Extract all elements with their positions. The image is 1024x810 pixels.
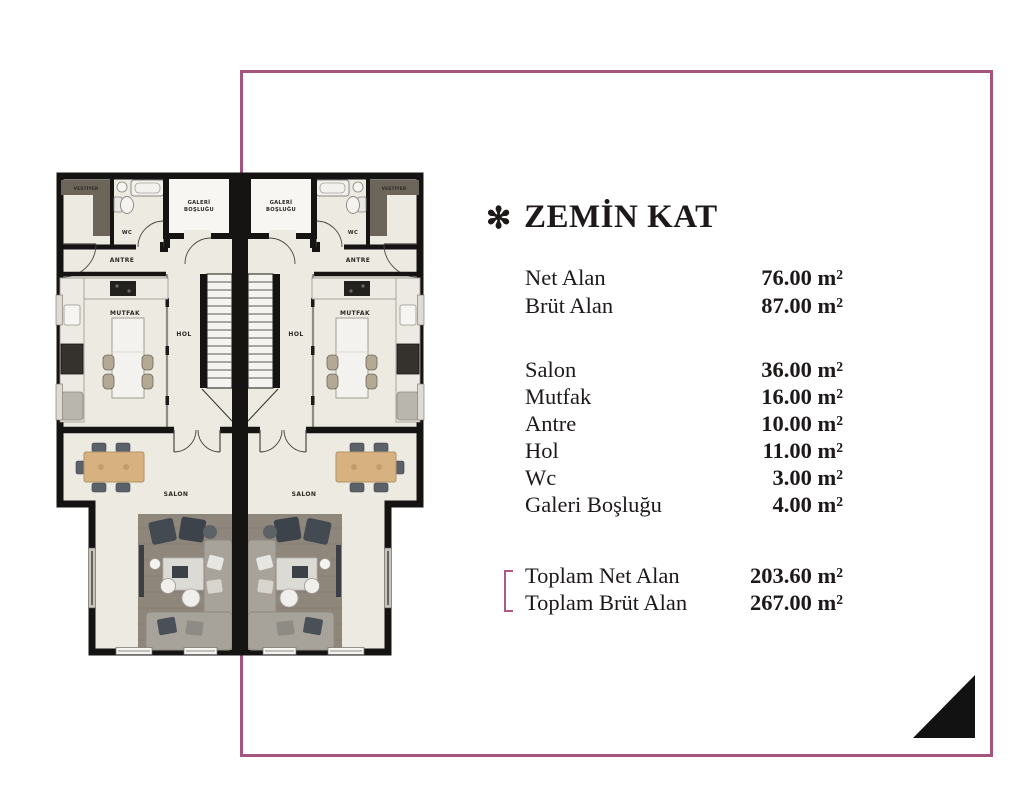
table-row: Toplam Brüt Alan 267.00 m² <box>525 589 843 616</box>
row-label: Mutfak <box>525 383 591 410</box>
page: { "panel": { "marker": "✻", "title": "ZE… <box>0 0 1024 810</box>
row-value: 16.00 m² <box>761 383 843 410</box>
label-vestiyer: VESTİYER <box>74 185 99 192</box>
label-hol: HOL <box>288 331 303 338</box>
label-antre: ANTRE <box>110 257 134 264</box>
row-value: 3.00 m² <box>773 464 844 491</box>
table-row: Antre 10.00 m² <box>525 410 843 437</box>
totals-bracket <box>504 570 513 612</box>
label-galeri-2: BOŞLUĞU <box>184 206 214 213</box>
table-row: Hol 11.00 m² <box>525 437 843 464</box>
row-label: Wc <box>525 464 556 491</box>
floor-plan: VESTİYER WC GALERİ BOŞLUĞU ANTRE MUTFAK … <box>55 165 435 663</box>
label-galeri-2: BOŞLUĞU <box>266 206 296 213</box>
table-row: Mutfak 16.00 m² <box>525 383 843 410</box>
row-label: Toplam Brüt Alan <box>525 589 687 616</box>
row-label: Hol <box>525 437 559 464</box>
page-title: ZEMİN KAT <box>524 199 718 236</box>
party-wall <box>232 173 248 656</box>
table-row: Wc 3.00 m² <box>525 464 843 491</box>
row-value: 11.00 m² <box>763 437 844 464</box>
row-label: Toplam Net Alan <box>525 562 680 589</box>
label-antre: ANTRE <box>346 257 370 264</box>
label-vestiyer: VESTİYER <box>382 185 407 192</box>
totals-table: Toplam Net Alan 203.60 m² Toplam Brüt Al… <box>525 562 843 616</box>
row-value: 36.00 m² <box>761 356 843 383</box>
row-value: 76.00 m² <box>761 264 843 292</box>
label-galeri-1: GALERİ <box>188 199 211 206</box>
label-galeri-1: GALERİ <box>270 199 293 206</box>
label-mutfak: MUTFAK <box>110 310 140 317</box>
row-label: Galeri Boşluğu <box>525 491 662 518</box>
label-wc: WC <box>122 230 132 236</box>
table-row: Salon 36.00 m² <box>525 356 843 383</box>
label-salon: SALON <box>164 491 189 498</box>
flower-asterisk-icon: ✻ <box>486 201 511 236</box>
row-value: 203.60 m² <box>750 562 843 589</box>
row-label: Net Alan <box>525 264 606 292</box>
table-row: Net Alan 76.00 m² <box>525 264 843 292</box>
label-hol: HOL <box>176 331 191 338</box>
row-value: 87.00 m² <box>761 292 843 320</box>
table-row: Brüt Alan 87.00 m² <box>525 292 843 320</box>
row-value: 4.00 m² <box>773 491 844 518</box>
label-mutfak: MUTFAK <box>340 310 370 317</box>
table-row: Toplam Net Alan 203.60 m² <box>525 562 843 589</box>
row-value: 267.00 m² <box>750 589 843 616</box>
row-label: Antre <box>525 410 576 437</box>
row-label: Brüt Alan <box>525 292 613 320</box>
summary-table: Net Alan 76.00 m² Brüt Alan 87.00 m² <box>525 264 843 320</box>
row-label: Salon <box>525 356 576 383</box>
corner-triangle <box>913 675 975 738</box>
row-value: 10.00 m² <box>761 410 843 437</box>
label-salon: SALON <box>292 491 317 498</box>
rooms-table: Salon 36.00 m² Mutfak 16.00 m² Antre 10.… <box>525 356 843 518</box>
table-row: Galeri Boşluğu 4.00 m² <box>525 491 843 518</box>
label-wc: WC <box>348 230 358 236</box>
